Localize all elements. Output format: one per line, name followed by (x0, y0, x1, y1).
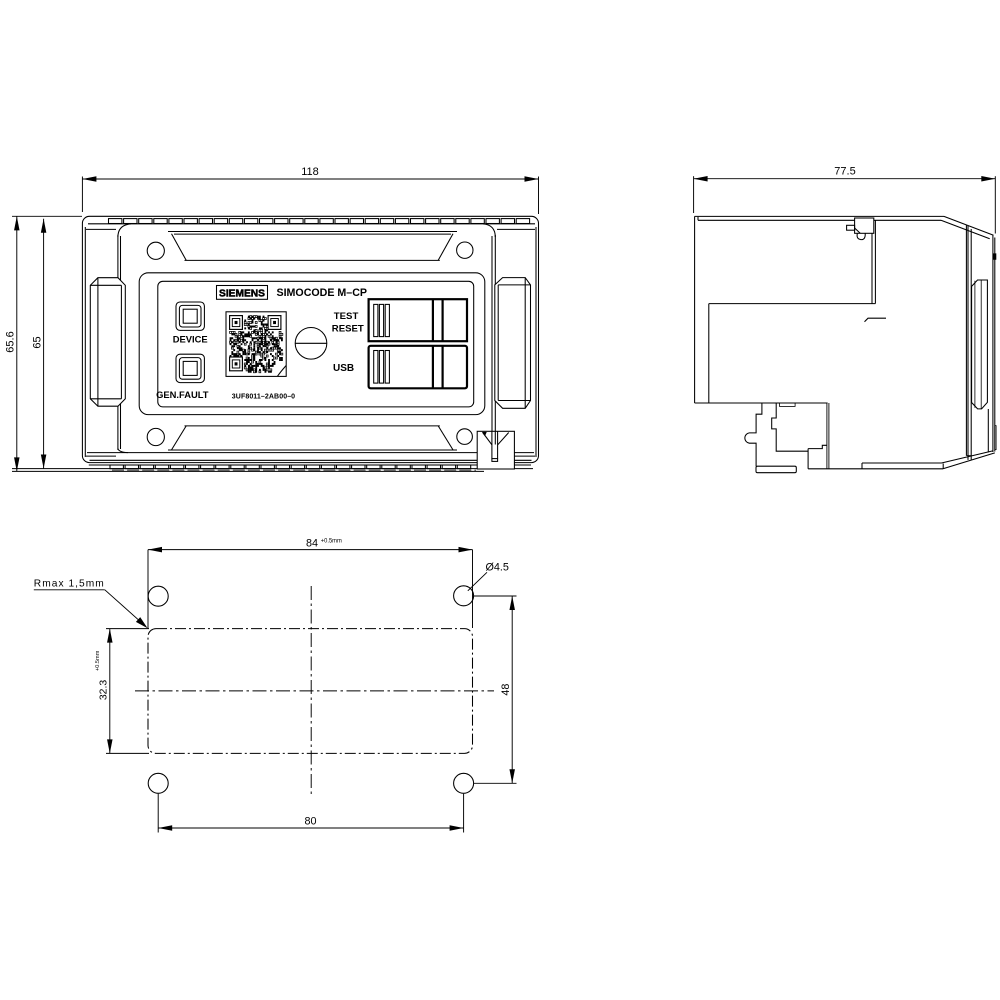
svg-text:USB: USB (333, 363, 354, 374)
svg-text:DEVICE: DEVICE (173, 333, 208, 344)
svg-text:118: 118 (301, 166, 319, 178)
svg-text:+0.5mm: +0.5mm (321, 537, 342, 544)
svg-text:GEN.FAULT: GEN.FAULT (156, 389, 209, 400)
svg-text:3UF8011–2AB00–0: 3UF8011–2AB00–0 (232, 393, 295, 400)
svg-text:RESET: RESET (332, 324, 364, 335)
svg-text:84: 84 (306, 538, 318, 550)
svg-text:TEST: TEST (334, 311, 359, 322)
svg-text:65: 65 (31, 336, 43, 348)
svg-text:Ø4.5: Ø4.5 (486, 562, 509, 574)
svg-text:Rmax 1,5mm: Rmax 1,5mm (34, 579, 104, 590)
svg-text:SIEMENS: SIEMENS (219, 289, 265, 300)
svg-text:77.5: 77.5 (834, 166, 855, 178)
svg-text:65.6: 65.6 (5, 331, 17, 352)
svg-text:32.3: 32.3 (99, 680, 110, 700)
svg-text:SIMOCODE M–CP: SIMOCODE M–CP (277, 287, 368, 299)
svg-text:+0.5mm: +0.5mm (95, 650, 101, 671)
svg-text:48: 48 (500, 684, 512, 696)
svg-text:80: 80 (304, 815, 316, 827)
